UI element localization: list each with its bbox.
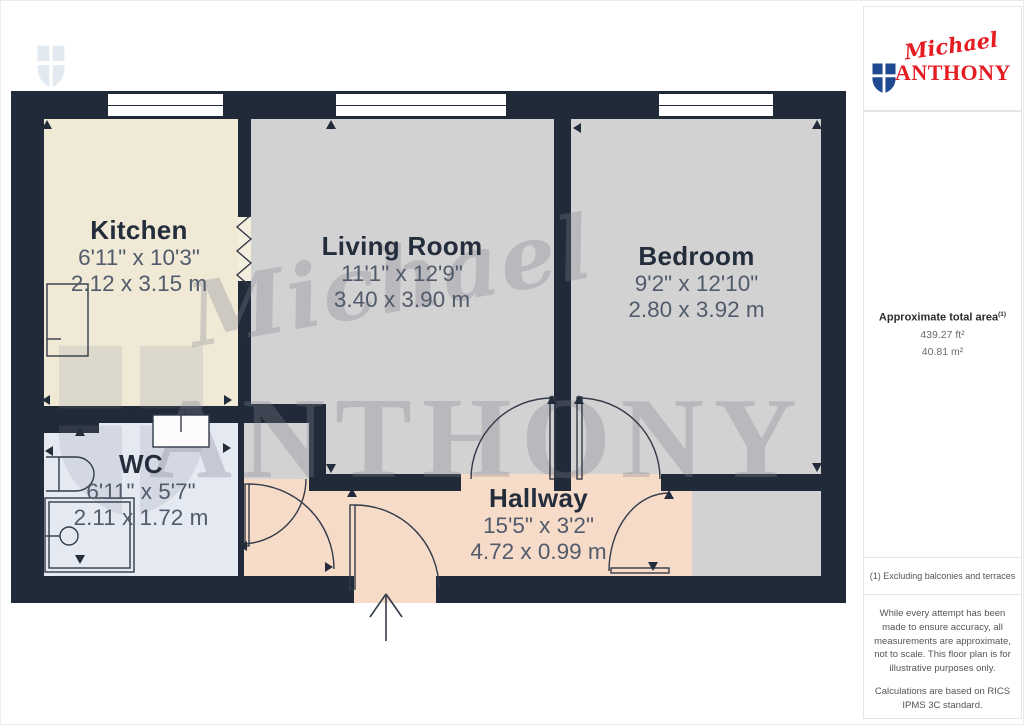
window-kitchen — [108, 92, 223, 118]
footnote-text: (1) Excluding balconies and terraces — [870, 571, 1016, 581]
room-size-imperial: 9'2" x 12'10" — [584, 271, 809, 297]
room-size-metric: 4.72 x 0.99 m — [426, 539, 651, 565]
window-living-room — [336, 92, 506, 118]
room-name: Bedroom — [584, 241, 809, 271]
footnote-ref: (1) — [998, 311, 1006, 318]
total-area-box: Approximate total area(1) 439.27 ft² 40.… — [863, 111, 1022, 558]
floorplan-page: Michael ANTHONY — [0, 0, 1024, 725]
label-kitchen: Kitchen 6'11" x 10'3" 2.12 x 3.15 m — [39, 215, 239, 297]
label-living-room: Living Room 11'1" x 12'9" 3.40 x 3.90 m — [287, 231, 517, 313]
standard-text: Calculations are based on RICS IPMS 3C s… — [871, 685, 1014, 713]
room-size-metric: 2.80 x 3.92 m — [584, 297, 809, 323]
room-name: WC — [41, 449, 241, 479]
footnote-box: (1) Excluding balconies and terraces — [863, 557, 1022, 595]
room-name: Kitchen — [39, 215, 239, 245]
label-hallway: Hallway 15'5" x 3'2" 4.72 x 0.99 m — [426, 483, 651, 565]
room-name: Hallway — [426, 483, 651, 513]
label-wc: WC 6'11" x 5'7" 2.11 x 1.72 m — [41, 449, 241, 531]
room-size-metric: 3.40 x 3.90 m — [287, 287, 517, 313]
room-size-metric: 2.12 x 3.15 m — [39, 271, 239, 297]
room-size-metric: 2.11 x 1.72 m — [41, 505, 241, 531]
room-closet — [244, 423, 309, 479]
total-area-m: 40.81 m² — [922, 346, 963, 358]
room-size-imperial: 6'11" x 10'3" — [39, 245, 239, 271]
label-bedroom: Bedroom 9'2" x 12'10" 2.80 x 3.92 m — [584, 241, 809, 323]
wall-segment — [309, 423, 326, 491]
agency-shield-icon — [872, 63, 896, 95]
window-bedroom — [659, 92, 773, 118]
wall-break — [238, 217, 251, 281]
room-storage — [692, 491, 821, 576]
disclaimer-text: While every attempt has been made to ens… — [871, 607, 1014, 676]
disclaimer-box: While every attempt has been made to ens… — [863, 594, 1022, 719]
agency-logo-box: Michael ANTHONY — [863, 6, 1022, 111]
shield-watermark-icon — [37, 45, 65, 90]
total-area-ft: 439.27 ft² — [920, 329, 964, 341]
wall-segment — [238, 404, 326, 423]
agency-logo-name: ANTHONY — [895, 60, 1011, 86]
total-area-title: Approximate total area(1) — [879, 311, 1006, 324]
wall-segment — [661, 474, 692, 491]
room-size-imperial: 6'11" x 5'7" — [41, 479, 241, 505]
room-size-imperial: 15'5" x 3'2" — [426, 513, 651, 539]
entrance-opening — [354, 576, 436, 603]
room-size-imperial: 11'1" x 12'9" — [287, 261, 517, 287]
agency-logo-script: Michael — [903, 27, 1000, 65]
room-name: Living Room — [287, 231, 517, 261]
